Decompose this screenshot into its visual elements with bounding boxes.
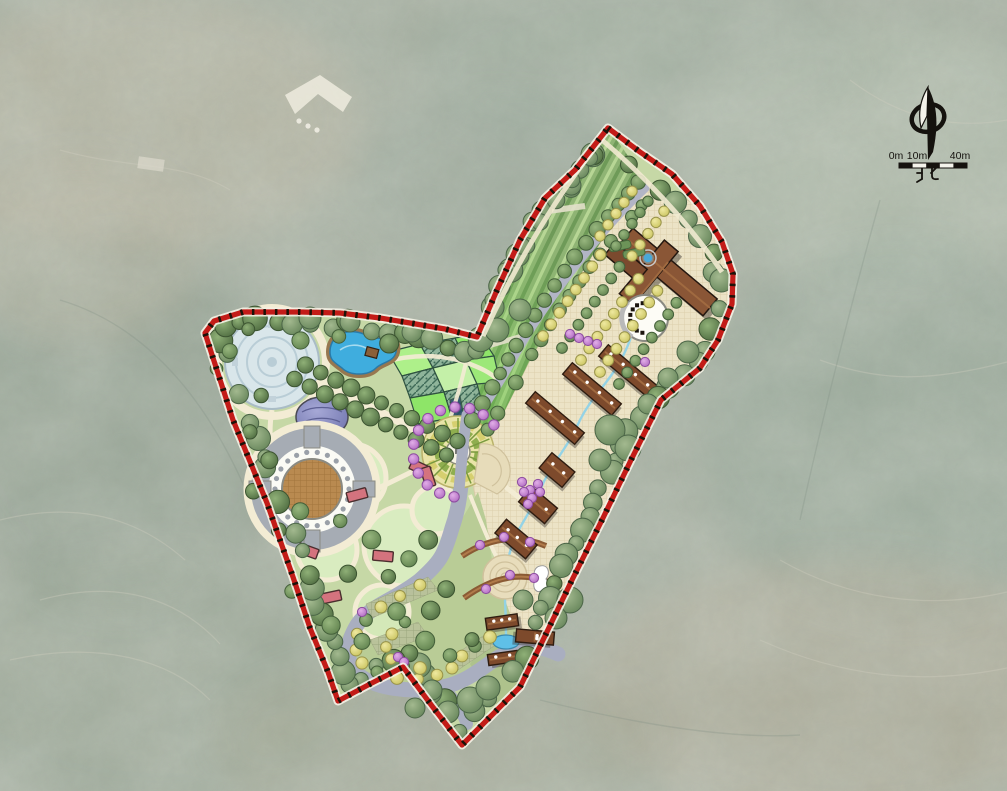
pavilion: [373, 550, 394, 562]
scale-label-10m: 10m: [907, 150, 928, 162]
scale-bar-segments: [899, 163, 967, 168]
scale-label-40m: 40m: [950, 150, 971, 162]
scale-label-0m: 0m: [889, 150, 904, 162]
masterplan-screenshot: 北 0m 10m 40m: [0, 0, 1007, 791]
masterplan-canvas: 北 0m 10m 40m: [0, 0, 1007, 791]
